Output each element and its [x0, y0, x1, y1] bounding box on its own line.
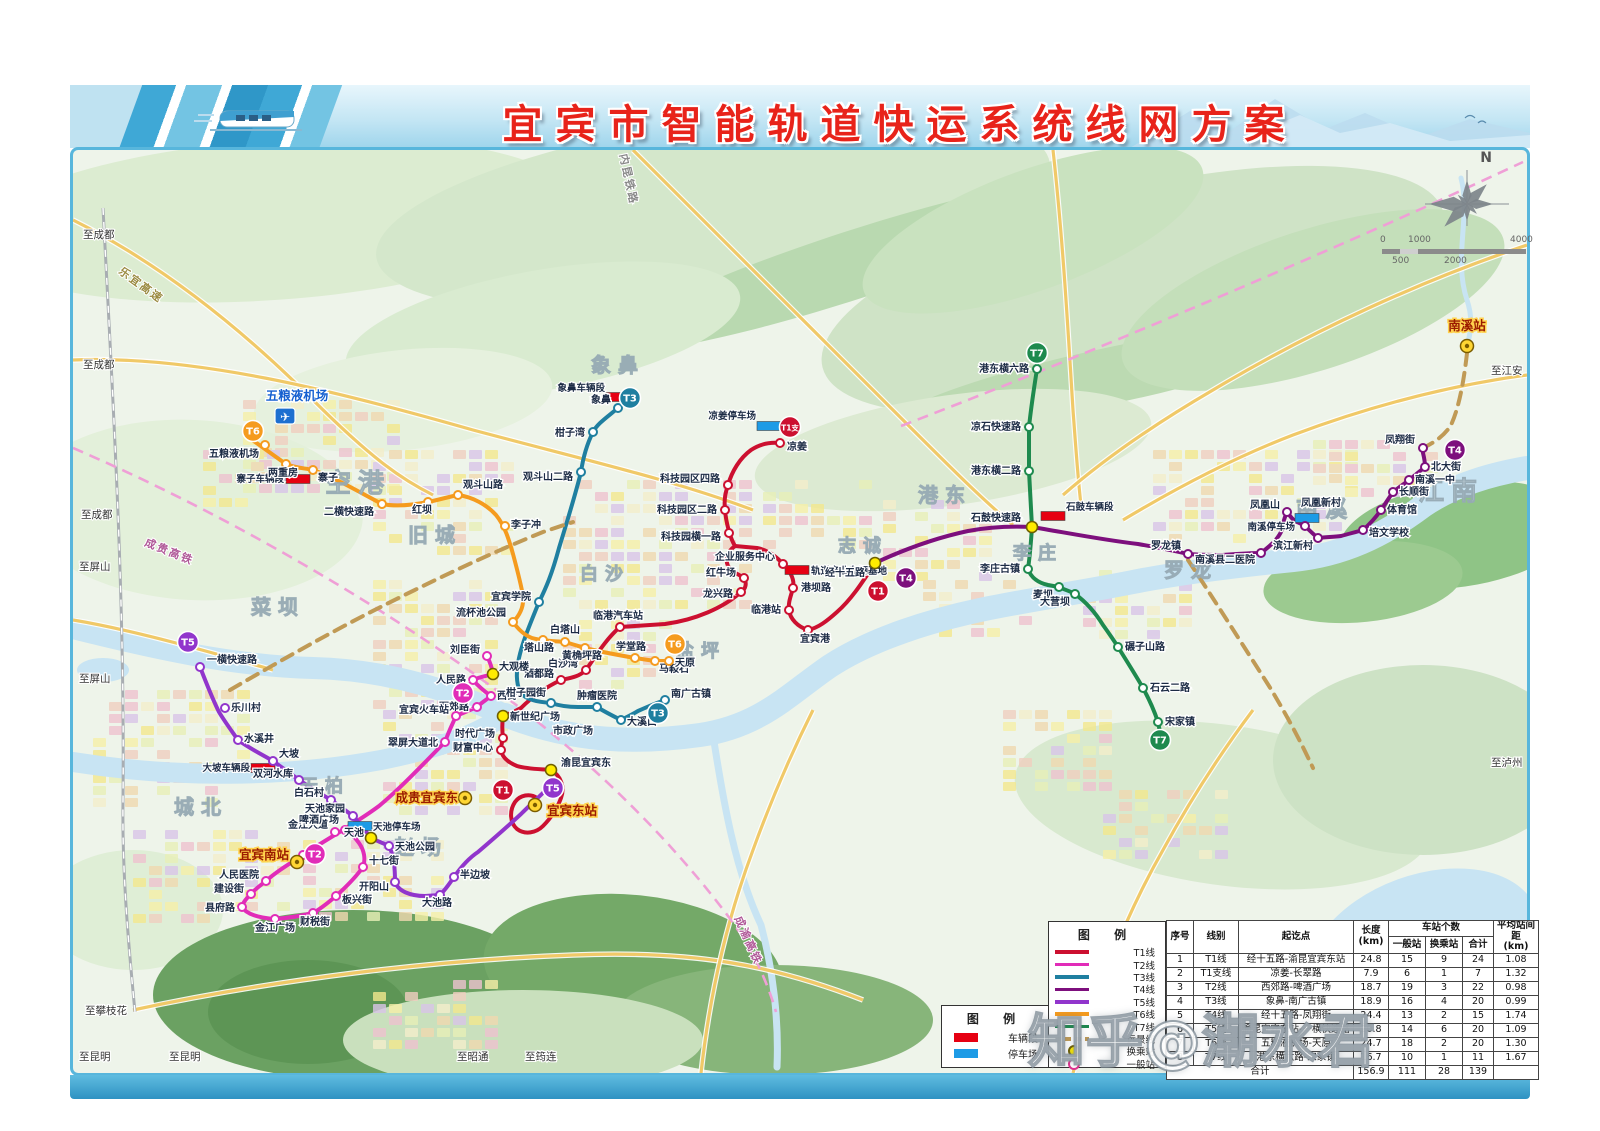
urban-block: [1297, 450, 1310, 459]
table-cell: 象鼻-南广古镇: [1239, 995, 1354, 1009]
station-dot: [1389, 488, 1397, 496]
urban-block: [453, 592, 466, 601]
station-label: 学堂路: [616, 640, 647, 653]
table-cell: 24: [1463, 953, 1494, 967]
urban-block: [1313, 522, 1326, 531]
urban-block: [219, 474, 232, 483]
urban-block: [453, 980, 466, 989]
station-dot: [665, 657, 673, 665]
urban-block: [469, 462, 482, 471]
urban-block: [307, 412, 320, 421]
station-label: 水溪井: [243, 732, 274, 745]
station-label: 宜宾港: [800, 632, 831, 645]
urban-block: [627, 600, 640, 609]
urban-block: [1119, 814, 1132, 823]
table-cell: 1.74: [1494, 1009, 1539, 1023]
table-cell: 合计: [1167, 1065, 1354, 1079]
table-cell: 13: [1389, 1009, 1426, 1023]
urban-block: [399, 806, 412, 815]
urban-block: [437, 474, 450, 483]
urban-block: [1135, 802, 1148, 811]
station-label: 南溪一中: [1415, 473, 1455, 486]
urban-block: [1135, 790, 1148, 799]
urban-block: [1425, 452, 1438, 461]
station-dot: [582, 666, 590, 674]
urban-block: [763, 504, 776, 513]
scale-seg: [1382, 249, 1400, 254]
station-dot: [499, 734, 507, 742]
station-dot: [631, 654, 639, 662]
station-label: 体育馆: [1387, 503, 1417, 516]
table-cell: 19: [1389, 981, 1426, 995]
scale-label-0: 0: [1380, 235, 1386, 245]
urban-block: [323, 460, 336, 469]
station-dot: [391, 878, 399, 886]
urban-block: [437, 628, 450, 637]
urban-block: [1313, 464, 1326, 473]
urban-block: [165, 902, 178, 911]
table-cell: 经十五路-凤翔街: [1239, 1009, 1354, 1023]
table-cell: 3: [1426, 981, 1463, 995]
station-dot: [779, 560, 787, 568]
urban-block: [739, 480, 752, 489]
table-cell: 20.8: [1354, 1023, 1389, 1037]
station-label: 象鼻: [591, 393, 611, 406]
urban-block: [303, 876, 316, 885]
urban-block: [1313, 450, 1326, 459]
station-dot: [1071, 590, 1079, 598]
urban-block: [1119, 802, 1132, 811]
urban-block: [1083, 770, 1096, 779]
urban-block: [93, 738, 106, 747]
urban-block: [205, 726, 218, 735]
urban-block: [181, 914, 194, 923]
urban-block: [843, 516, 856, 525]
parking-rect: [1295, 514, 1319, 523]
urban-block: [795, 504, 808, 513]
urban-block: [1147, 618, 1160, 627]
urban-block: [229, 830, 242, 839]
urban-block: [205, 714, 218, 723]
rail-hub-icon-core: [533, 803, 537, 807]
station-dot: [1405, 476, 1413, 484]
scale-bar: 0 1000 4000 500 2000: [1382, 235, 1532, 271]
station-dot: [497, 746, 505, 754]
station-dot: [1283, 508, 1291, 516]
urban-block: [643, 480, 656, 489]
station-label: 五粮液机场: [209, 447, 259, 460]
station-dot: [1139, 684, 1147, 692]
edge-label: 至昭通: [457, 1051, 489, 1063]
table-cell: 14: [1389, 1023, 1426, 1037]
table-cell: 16: [1389, 995, 1426, 1009]
urban-block: [1201, 486, 1214, 495]
urban-block: [1345, 476, 1358, 485]
urban-block: [495, 806, 508, 815]
urban-block: [453, 992, 466, 1001]
urban-block: [579, 528, 592, 537]
urban-block: [141, 726, 154, 735]
edge-label: 至攀枝花: [85, 1004, 127, 1017]
urban-block: [779, 504, 792, 513]
urban-block: [157, 714, 170, 723]
table-cell: 28: [1426, 1065, 1463, 1079]
urban-block: [389, 1040, 402, 1049]
urban-block: [963, 536, 976, 545]
urban-block: [165, 866, 178, 875]
urban-block: [1067, 734, 1080, 743]
urban-block: [1185, 522, 1198, 531]
table-cell: T5线: [1194, 1023, 1239, 1037]
compass-n-label: N: [1480, 150, 1492, 166]
urban-block: [1169, 510, 1182, 519]
facility-label: 南溪停车场: [1247, 521, 1295, 533]
station-label: 宋家镇: [1164, 715, 1195, 728]
urban-block: [173, 726, 186, 735]
urban-block: [1051, 746, 1064, 755]
urban-block: [627, 632, 640, 641]
table-cell: 2: [1167, 967, 1194, 981]
table-cell: 24.7: [1354, 1037, 1389, 1051]
urban-block: [109, 702, 122, 711]
station-label: 宜宾火车站: [399, 703, 449, 716]
station-label: 天池公园: [395, 840, 435, 853]
urban-block: [463, 758, 476, 767]
urban-block: [627, 504, 640, 513]
urban-block: [739, 492, 752, 501]
legend-facility-label: 车辆段: [1008, 1030, 1044, 1045]
line-badge-label: T5: [181, 637, 195, 648]
urban-block: [1003, 722, 1016, 731]
urban-block: [243, 412, 256, 421]
table-total-row: 合计156.911128139: [1167, 1065, 1539, 1079]
table-cell: T3线: [1194, 995, 1239, 1009]
table-cell: 18.7: [1354, 981, 1389, 995]
table-cell: 24.8: [1354, 953, 1389, 967]
table-cell: 0.98: [1494, 981, 1539, 995]
station-label: 天原: [675, 657, 695, 669]
urban-block: [421, 616, 434, 625]
urban-block: [1179, 618, 1192, 627]
urban-block: [125, 690, 138, 699]
urban-block: [149, 866, 162, 875]
urban-block: [415, 912, 428, 921]
station-dot: [247, 890, 255, 898]
legend-line-swatch: [1055, 988, 1089, 992]
urban-block: [469, 1016, 482, 1025]
urban-block: [595, 600, 608, 609]
urban-block: [1003, 758, 1016, 767]
station-label: 寨子: [317, 471, 338, 484]
urban-block: [659, 600, 672, 609]
legend-lines: 图 例 T1线T2线T3线T4线T5线T6线T7线远景线换乘站一般站: [1048, 921, 1166, 1068]
urban-block: [437, 1004, 450, 1013]
depot-rect: [1041, 512, 1065, 521]
station-label: 金江广场: [254, 921, 295, 934]
station-dot: [309, 909, 317, 917]
station-label: 大坡: [279, 747, 300, 760]
urban-block: [915, 560, 928, 569]
urban-block: [431, 722, 444, 731]
edge-label: 至屏山: [79, 561, 111, 573]
table-row: 1T1线经十五路-渝昆宜宾东站24.8159241.08: [1167, 953, 1539, 967]
urban-block: [173, 714, 186, 723]
station-label: 企业服务中心: [714, 550, 775, 563]
urban-block: [811, 504, 824, 513]
line-badge-label: T2: [308, 849, 322, 860]
urban-block: [1067, 710, 1080, 719]
station-dot: [1421, 463, 1429, 471]
urban-block: [373, 522, 386, 531]
legend-line-item: T6线: [1055, 1008, 1159, 1020]
urban-block: [1103, 850, 1116, 859]
station-dot: [469, 676, 477, 684]
table-row: 3T2线西郊路-啤酒广场18.7193220.98: [1167, 981, 1539, 995]
urban-block: [383, 782, 396, 791]
urban-block: [947, 548, 960, 557]
urban-block: [1163, 594, 1176, 603]
urban-block: [109, 726, 122, 735]
urban-block: [779, 528, 792, 537]
table-row: 4T3线象鼻-南广古镇18.9164200.99: [1167, 995, 1539, 1009]
area-label: 菜坝: [250, 595, 305, 619]
station-dot: [557, 676, 565, 684]
station-dot: [327, 796, 335, 804]
table-cell: T2线: [1194, 981, 1239, 995]
urban-block: [1051, 770, 1064, 779]
station-label: 红坝: [412, 503, 432, 516]
poster: 宜宾市智能轨道快运系统线网方案 空港象鼻旧城菜坝白沙盐坪志诚港东李庄罗龙南溪江南…: [0, 0, 1600, 1131]
urban-block: [1329, 464, 1342, 473]
legend-line-swatch: [1055, 1025, 1089, 1029]
urban-block: [1035, 782, 1048, 791]
line-badge-label: T5: [546, 783, 560, 794]
urban-block: [453, 1028, 466, 1037]
station-dot: [1359, 526, 1367, 534]
urban-block: [485, 640, 498, 649]
urban-block: [1153, 522, 1166, 531]
urban-block: [335, 852, 348, 861]
urban-block: [643, 504, 656, 513]
line-table-grid: 序号线别起讫点长度 (km)车站个数平均站间距 (km)一般站换乘站合计1T1线…: [1166, 920, 1539, 1080]
station-label: 建设街: [213, 882, 244, 895]
legend-lines-title: 图 例: [1055, 926, 1159, 943]
table-cell: 10: [1389, 1051, 1426, 1065]
legend-facilities: 图 例 车辆段停车场: [941, 1005, 1051, 1068]
urban-block: [453, 628, 466, 637]
urban-block: [1083, 618, 1096, 627]
urban-block: [1329, 522, 1342, 531]
station-dot: [1033, 365, 1041, 373]
compass-rose: N: [1412, 154, 1522, 242]
station-dot: [616, 623, 624, 631]
urban-block: [469, 980, 482, 989]
urban-block: [1199, 826, 1212, 835]
urban-block: [373, 510, 386, 519]
urban-block: [165, 854, 178, 863]
table-cell: 港东横六路-宋家镇: [1239, 1051, 1354, 1065]
urban-block: [335, 912, 348, 921]
table-cell: 11: [1463, 1051, 1494, 1065]
urban-block: [675, 516, 688, 525]
urban-block: [883, 512, 896, 521]
train-icon: [194, 111, 302, 130]
urban-block: [141, 702, 154, 711]
urban-block: [237, 750, 250, 759]
parking-rect: [757, 422, 781, 431]
urban-block: [437, 664, 450, 673]
table-cell: 6: [1426, 1023, 1463, 1037]
urban-block: [251, 462, 264, 471]
line-badge-label: T3: [623, 393, 637, 404]
urban-block: [1329, 474, 1342, 483]
urban-block: [157, 726, 170, 735]
line-badge-label: T1支: [781, 422, 799, 432]
urban-block: [125, 798, 138, 807]
legend-line-swatch: [1055, 950, 1089, 954]
urban-block: [371, 412, 384, 421]
urban-block: [1003, 710, 1016, 719]
station-dot: [740, 574, 748, 582]
table-row: 7T6线五粮液机场-天原24.7182201.30: [1167, 1037, 1539, 1051]
urban-block: [405, 652, 418, 661]
legend-facilities-items: 车辆段停车场: [948, 1030, 1044, 1060]
urban-block: [421, 1028, 434, 1037]
station-dot: [487, 692, 495, 700]
urban-block: [1215, 814, 1228, 823]
urban-block: [971, 628, 984, 637]
table-cell: 1.30: [1494, 1037, 1539, 1051]
urban-block: [611, 504, 624, 513]
table-cell: 15: [1389, 953, 1426, 967]
urban-block: [707, 516, 720, 525]
urban-block: [1215, 826, 1228, 835]
station-dot: [1055, 583, 1063, 591]
urban-block: [563, 576, 576, 585]
station-label: 凉石快速路: [971, 420, 1022, 433]
station-dot: [262, 877, 270, 885]
urban-block: [323, 436, 336, 445]
urban-block: [389, 640, 402, 649]
station-dot: [785, 606, 793, 614]
urban-block: [485, 450, 498, 459]
urban-block: [579, 600, 592, 609]
legend-line-item: T4线: [1055, 983, 1159, 995]
urban-block: [469, 510, 482, 519]
legend-station-label: 一般站: [1126, 1057, 1159, 1071]
station-label: 天池家园: [305, 802, 345, 815]
urban-block: [659, 516, 672, 525]
urban-block: [389, 450, 402, 459]
station-dot: [1114, 643, 1122, 651]
transfer-station-dot: [366, 833, 377, 844]
urban-block: [149, 902, 162, 911]
station-label: 时代广场: [455, 727, 495, 740]
urban-block: [1103, 826, 1116, 835]
urban-block: [579, 620, 592, 629]
urban-block: [739, 528, 752, 537]
line-badge-label: T3: [651, 708, 665, 719]
urban-block: [405, 604, 418, 613]
urban-block: [1185, 510, 1198, 519]
poster-title: 宜宾市智能轨道快运系统线网方案: [300, 92, 1500, 148]
urban-block: [149, 914, 162, 923]
urban-block: [275, 484, 288, 493]
station-label: 北大街: [1431, 460, 1461, 473]
urban-block: [291, 484, 304, 493]
table-cell: T1线: [1194, 953, 1239, 967]
station-dot: [577, 468, 585, 476]
urban-block: [1249, 474, 1262, 483]
station-label: 黄桷坪路: [562, 649, 603, 662]
urban-block: [739, 516, 752, 525]
table-cell: 139: [1463, 1065, 1494, 1079]
urban-block: [627, 540, 640, 549]
station-label: 宜宾学院: [491, 590, 531, 603]
station-label: 人民医院: [219, 868, 259, 881]
station-label: 凤凰山: [1250, 498, 1280, 511]
urban-block: [133, 830, 146, 839]
area-label: 港东: [918, 483, 972, 507]
urban-block: [1131, 606, 1144, 615]
urban-block: [157, 702, 170, 711]
table-cell: 0.99: [1494, 995, 1539, 1009]
legend-facility-swatch: [954, 1049, 978, 1058]
station-dot: [776, 439, 784, 447]
table-cell: 20: [1463, 995, 1494, 1009]
urban-block: [405, 1016, 418, 1025]
urban-block: [1135, 838, 1148, 847]
table-cell: 4: [1167, 995, 1194, 1009]
line-badge-label: T1: [871, 586, 885, 597]
urban-block: [883, 524, 896, 533]
urban-block: [595, 540, 608, 549]
urban-block: [763, 492, 776, 501]
urban-block: [373, 652, 386, 661]
urban-block: [1169, 522, 1182, 531]
edge-label: 至成都: [83, 359, 115, 371]
urban-block: [627, 552, 640, 561]
urban-block: [373, 640, 386, 649]
urban-block: [431, 912, 444, 921]
urban-block: [1215, 850, 1228, 859]
table-cell: 经十五路-渝昆宜宾东站: [1239, 953, 1354, 967]
station-label: 刘臣街: [450, 643, 480, 656]
urban-block: [437, 1028, 450, 1037]
urban-block: [659, 492, 672, 501]
station-label: 柑子园街: [506, 686, 546, 699]
station-dot: [234, 736, 242, 744]
urban-block: [221, 690, 234, 699]
station-label: 双河水库: [253, 767, 293, 780]
urban-block: [643, 668, 656, 677]
urban-block: [611, 528, 624, 537]
station-dot: [1314, 534, 1322, 542]
station-label: 流杯池公园: [456, 606, 506, 619]
urban-block: [1345, 452, 1358, 461]
urban-block: [373, 616, 386, 625]
urban-block: [1083, 782, 1096, 791]
station-label: 市政广场: [553, 724, 593, 737]
line-table: 序号线别起讫点长度 (km)车站个数平均站间距 (km)一般站换乘站合计1T1线…: [1166, 920, 1539, 1080]
station-label: 凤凰新村: [1301, 496, 1341, 509]
station-label: 临港站: [751, 603, 781, 616]
urban-block: [1035, 710, 1048, 719]
urban-block: [1345, 488, 1358, 497]
urban-block: [579, 480, 592, 489]
table-row: 8T7线港东横六路-宋家镇16.7101111.67: [1167, 1051, 1539, 1065]
station-label: 红牛场: [706, 566, 736, 579]
